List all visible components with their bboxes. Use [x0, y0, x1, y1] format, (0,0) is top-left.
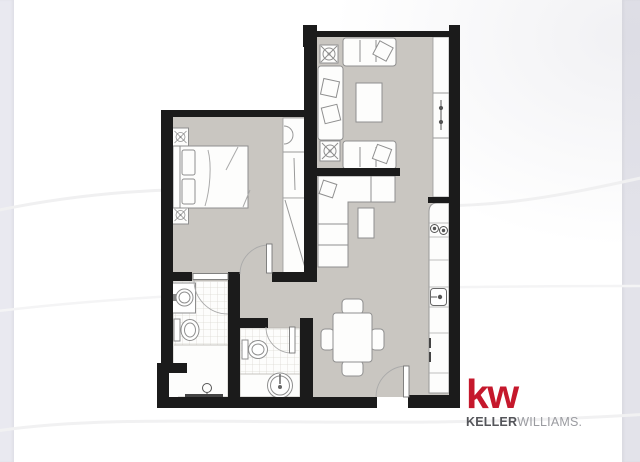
- sofa: [343, 38, 396, 66]
- bedroom-top-wall: [161, 110, 317, 117]
- toilet: [242, 340, 268, 359]
- ottoman: [358, 208, 374, 238]
- toilet: [174, 319, 199, 341]
- bedroom-living-wall: [304, 25, 317, 282]
- ensuite-shower-nook: [168, 373, 178, 397]
- wall-stub: [272, 272, 317, 282]
- kw-logo-keller: KELLER: [466, 415, 517, 429]
- living-top-wall: [317, 31, 449, 37]
- dining-chair: [371, 329, 384, 350]
- left-outer-wall: [161, 110, 173, 363]
- living-half-wall: [317, 168, 400, 176]
- bottom-wall-left: [157, 397, 377, 408]
- bed: [173, 146, 250, 208]
- dining-chair: [342, 361, 363, 376]
- kw-logo-williams: WILLIAMS.: [517, 415, 582, 429]
- dining-table: [333, 313, 372, 362]
- coffee-table: [356, 83, 382, 122]
- bathroom-divider-wall: [228, 272, 240, 408]
- bathroom-sink: [173, 283, 196, 313]
- kw-logo-mark: kw: [466, 374, 582, 415]
- bedroom-bottom-wall: [161, 272, 192, 281]
- table-lamp-icon: [175, 131, 187, 143]
- kitchen-passage-floor: [400, 168, 428, 178]
- table-lamp-icon: [175, 209, 187, 221]
- dining-chair: [342, 299, 363, 314]
- second-bath-right-wall: [300, 318, 313, 408]
- throw-pillow: [321, 104, 340, 123]
- round-basin: [268, 373, 293, 398]
- plant-icon: [322, 143, 338, 159]
- sofa: [343, 141, 396, 169]
- keller-williams-logo: kw KELLERWILLIAMS.: [466, 374, 582, 429]
- bottom-wall-right: [408, 395, 460, 408]
- dining-chair: [321, 329, 334, 350]
- plant-icon: [321, 46, 337, 62]
- kitchen-divider-wall: [428, 197, 449, 203]
- right-outer-wall: [449, 25, 460, 408]
- listing-photo-viewer: kw KELLERWILLIAMS.: [0, 0, 640, 462]
- kw-logo-wordmark: KELLERWILLIAMS.: [466, 416, 582, 429]
- second-bath-top-wall: [240, 318, 268, 328]
- kitchen-sink: [431, 289, 447, 306]
- kitchen: [429, 203, 449, 393]
- chaise-lounge: [318, 66, 343, 140]
- throw-pillow: [321, 79, 340, 98]
